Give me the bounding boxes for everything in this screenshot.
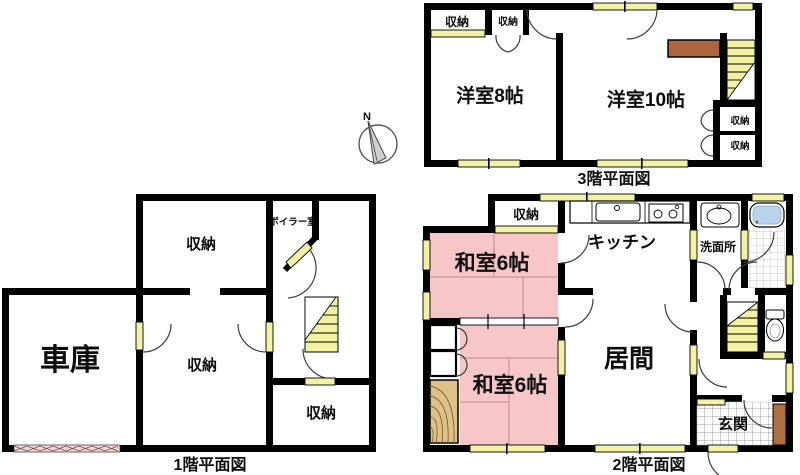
room-label-storage: 収納 bbox=[186, 235, 216, 253]
floor-plan-2f: 収納 和室6帖 和室6帖 キッチン 居間 洗面所 玄関 2階平面図 bbox=[423, 192, 793, 475]
floorplan-page: 収納 収納 洋室8帖 洋室10帖 収納 収納 3階平面図 N bbox=[0, 0, 800, 475]
entrance-wood-strip bbox=[773, 404, 786, 445]
room-label-entrance: 玄関 bbox=[718, 415, 748, 433]
room-label-western10: 洋室10帖 bbox=[607, 88, 685, 111]
room-label-kitchen: キッチン bbox=[588, 233, 656, 252]
entrance-area bbox=[697, 399, 786, 475]
room-label-japanese-upper: 和室6帖 bbox=[455, 251, 530, 275]
bathtub-icon bbox=[750, 203, 784, 227]
compass-north-label: N bbox=[363, 111, 371, 123]
room-label-storage: 収納 bbox=[187, 356, 217, 374]
room-label-storage: 収納 bbox=[498, 15, 518, 28]
toilet-icon bbox=[766, 310, 784, 341]
floor1-body bbox=[136, 194, 376, 452]
entrance-door-arc bbox=[708, 452, 738, 475]
room-label-washroom: 洗面所 bbox=[700, 239, 736, 254]
floor1-caption: 1階平面図 bbox=[174, 456, 247, 474]
garage-shutter-icon bbox=[14, 445, 120, 452]
bath-tile-floor bbox=[748, 228, 786, 288]
room-label-boiler: ボイラー室 bbox=[269, 216, 317, 228]
floor-plan-1f: 車庫 収納 ボイラー室 収納 収納 1階平面図 bbox=[2, 194, 376, 474]
room-label-japanese-lower: 和室6帖 bbox=[473, 373, 548, 397]
floor3-caption: 3階平面図 bbox=[578, 170, 651, 188]
floor3-body bbox=[424, 3, 762, 167]
floor2-caption: 2階平面図 bbox=[613, 456, 686, 474]
stairs-1f-icon bbox=[305, 297, 338, 352]
washbasin-icon bbox=[701, 203, 739, 227]
floorplan-drawing: 収納 収納 洋室8帖 洋室10帖 収納 収納 3階平面図 N bbox=[0, 0, 800, 475]
tokonoma-wood-icon bbox=[430, 380, 458, 443]
room-label-storage: 収納 bbox=[513, 207, 539, 222]
counter-closet-icon bbox=[668, 40, 720, 57]
room-label-storage: 収納 bbox=[730, 140, 749, 152]
kitchen-counter-icon bbox=[570, 201, 690, 223]
room-label-living: 居間 bbox=[604, 345, 654, 373]
stairs-3f-icon bbox=[727, 40, 755, 100]
room-label-storage: 収納 bbox=[306, 404, 336, 422]
room-label-storage: 収納 bbox=[730, 115, 749, 127]
room-label-storage: 収納 bbox=[445, 14, 469, 29]
compass-icon: N bbox=[359, 111, 397, 164]
room-label-western8: 洋室8帖 bbox=[456, 84, 524, 107]
floor-plan-3f: 収納 収納 洋室8帖 洋室10帖 収納 収納 3階平面図 bbox=[424, 1, 762, 188]
bathroom bbox=[748, 203, 786, 288]
stairs-2f-icon bbox=[727, 302, 758, 352]
stove-icon bbox=[649, 204, 683, 222]
room-label-garage: 車庫 bbox=[40, 344, 100, 377]
